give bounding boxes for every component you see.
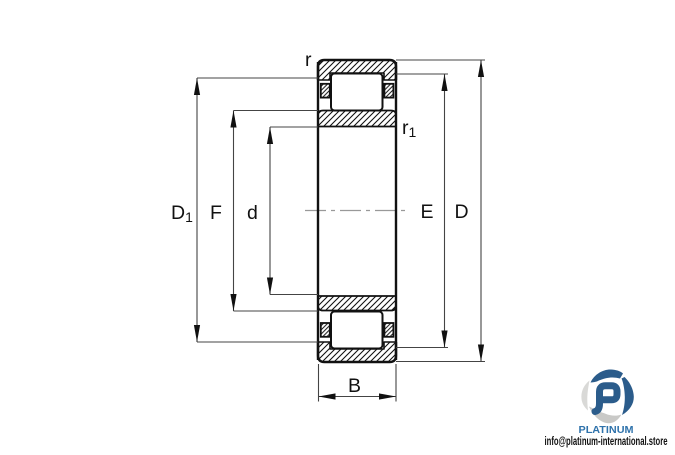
- svg-text:info@platinum-international.st: info@platinum-international.store: [545, 434, 668, 448]
- svg-text:d: d: [247, 202, 258, 224]
- svg-text:E: E: [421, 201, 434, 223]
- svg-text:r: r: [305, 49, 312, 71]
- svg-text:B: B: [348, 375, 361, 397]
- svg-text:F: F: [210, 202, 222, 224]
- svg-text:D: D: [455, 201, 469, 223]
